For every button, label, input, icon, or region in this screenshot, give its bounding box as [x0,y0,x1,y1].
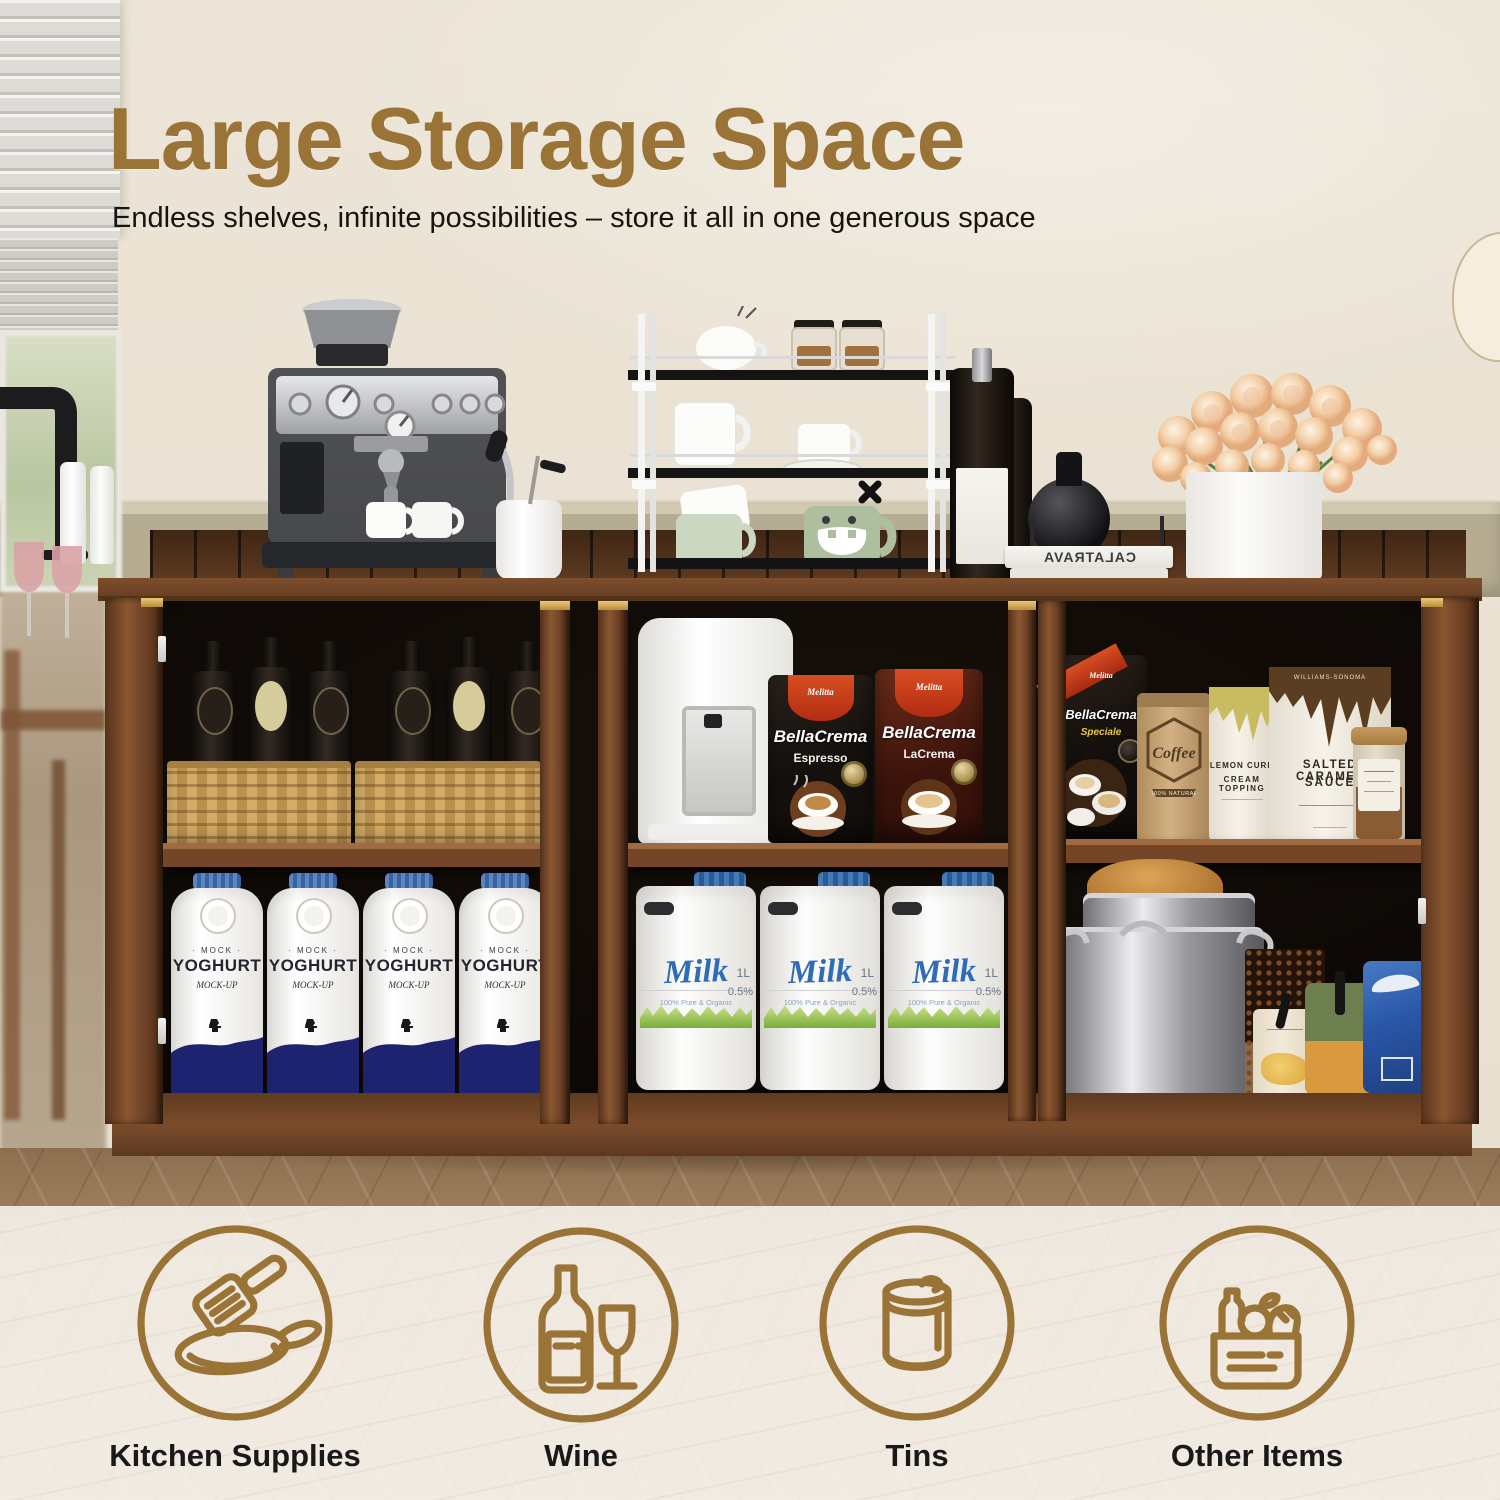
window-blinds-lower [0,238,118,330]
bottle-label [453,681,485,731]
milk-jug: Milk 100% Pure & Organic 1L 0.5% [760,872,880,1090]
bottle-neck [461,637,477,671]
melitta-red-banner [788,675,854,721]
bottle-label [255,681,287,731]
page-title: Large Storage Space [108,88,964,190]
dining-table-edge [0,710,106,730]
jar-lid [1351,727,1407,745]
bottle-label [197,687,233,735]
cabinet-shelf [163,843,543,867]
speciale-variant: Speciale [1055,727,1147,738]
frying-pan-icon [130,1218,340,1428]
cabinet-plinth [112,1124,1472,1156]
yoghurt-bottle: · MOCK · YOGHURT MOCK-UP [171,873,263,1095]
spice-jar [1353,731,1405,843]
cabinet-door-open-mid [1008,601,1036,1121]
yoghurt-brand: · MOCK · [171,946,263,955]
bellacrema-name: BellaCrema [1055,707,1147,722]
door-hinge [158,636,166,662]
bottle-neck [205,641,221,675]
milk-pitcher [496,500,562,580]
marketing-banner: Large Storage Space Endless shelves, inf… [0,0,1500,1500]
cabinet-shelf [628,843,1010,867]
cabinet-door-open-mid [1038,601,1066,1121]
coffee-cup-art [778,775,858,837]
brass-corner-trim [1008,601,1036,610]
melitta-brand: Melitta [768,687,873,697]
brass-corner-trim [598,601,628,610]
yoghurt-bottle: · MOCK · YOGHURT MOCK-UP [363,873,455,1095]
lemon-line2: CREAM TOPPING [1209,775,1275,793]
latte-photo-art [1059,751,1137,835]
category-label: Wine [401,1438,761,1474]
bottle-neck [321,641,337,675]
caramel-brand: WILLIAMS-SONOMA [1269,675,1391,681]
bottle-neck [263,637,279,671]
jar-label [1358,759,1400,811]
coffee-bag-lacrema: Melitta BellaCrema LaCrema [875,669,983,843]
category-label: Other Items [1077,1438,1437,1474]
cabinet-countertop [98,578,1482,596]
swoosh-art [1370,972,1420,995]
wicker-basket [355,761,541,852]
coffee-bag-espresso: Melitta BellaCrema Espresso [768,675,873,843]
category-label: Kitchen Supplies [55,1438,415,1474]
melitta-brand: Melitta [875,682,983,692]
pot-handles [1051,917,1275,977]
brass-corner-trim [141,598,163,607]
door-hinge [1418,898,1426,924]
lemon-line1: LEMON CURD [1209,761,1275,770]
cabinet-door-open-left [105,598,163,1124]
wine-bottle-label [956,468,1008,564]
stir-sticks [500,452,570,508]
yoghurt-wave [171,1017,263,1095]
dispenser-base [648,824,783,840]
grocery-bag-icon [1152,1218,1362,1428]
bag-clip [1335,971,1345,1015]
cabinet-door-open-right [1421,598,1479,1124]
cabinet-door-open-mid [598,601,628,1124]
monster-mug [804,484,892,566]
dispenser-spout [704,714,722,728]
cabinet-body: · MOCK · YOGHURT MOCK-UP · MOCK · YOGHUR… [105,601,1479,1124]
wicker-basket [167,761,351,852]
black-vase-neck [1056,452,1082,486]
melitta-red-banner [895,669,963,717]
bookmark-stick [1160,516,1164,548]
brass-corner-trim [1421,598,1443,607]
cabinet-shelf [1063,839,1425,863]
melitta-brand: Melitta [1055,671,1147,680]
wine-icon [476,1220,686,1430]
yoghurt-sub: MOCK-UP [171,980,263,990]
chips-bag-blue [1363,961,1427,1093]
kraft-fold [1137,693,1211,707]
grass-art [640,1002,752,1028]
bookmark-stick [1030,516,1034,548]
kraft-coffee-bag: Coffee 100% NATURAL [1137,693,1211,843]
bellacrema-name: BellaCrema [768,727,873,747]
cabinet-inner-floor [155,1093,1431,1124]
milk-jug: Milk 100% Pure & Organic 1L 0.5% [884,872,1004,1090]
book-spine-text: CALATRAVA [1043,546,1136,568]
brass-corner-trim [540,601,570,610]
category-label: Tins [737,1438,1097,1474]
door-hinge [158,1018,166,1044]
caramel-script-rule [1299,805,1361,806]
yoghurt-seal [200,898,236,934]
book-stack: CALATRAVA [1005,546,1173,568]
lemon-curd-bag: LEMON CURD CREAM TOPPING [1209,687,1275,843]
wine-glasses [8,540,92,662]
coffee-bag-speciale: Melitta BellaCrema Speciale [1055,655,1147,843]
cabinet-shadow [60,1152,1460,1182]
flower-vase [1186,472,1322,580]
bellacrema-name: BellaCrema [875,723,983,743]
yoghurt-bottle: · MOCK · YOGHURT MOCK-UP [459,873,551,1095]
bottle-neck [519,641,535,675]
countertop-rack [626,306,960,584]
bottle-label [395,687,431,735]
kraft-coffee-name: Coffee [1137,745,1211,763]
tin-can-icon [812,1218,1022,1428]
milk-fat: 0.5% [728,986,753,998]
lemon-rule [1221,799,1263,800]
page-subtitle: Endless shelves, infinite possibilities … [112,202,1036,235]
yoghurt-name: YOGHURT [171,956,263,976]
label-box [1381,1057,1413,1081]
milk-body: Milk 100% Pure & Organic 1L 0.5% [636,886,756,1090]
cabinet-door-open-mid [540,601,570,1124]
coffee-cup-art [887,773,971,837]
caramel-net-rule [1313,827,1347,828]
bottle-label [313,687,349,735]
stool-leg [52,760,65,1120]
wine-bottle-cap [972,348,992,382]
yoghurt-body: · MOCK · YOGHURT MOCK-UP [171,888,263,1095]
milk-jug: Milk 100% Pure & Organic 1L 0.5% [636,872,756,1090]
water-bottle [90,466,114,564]
chips-art [1261,1053,1309,1085]
window-blinds [0,0,120,238]
yoghurt-bottle: · MOCK · YOGHURT MOCK-UP [267,873,359,1095]
kraft-coffee-tagline: 100% NATURAL [1137,791,1211,797]
drip-art [1209,687,1275,757]
milk-size: 1L [737,966,750,980]
bottle-neck [403,641,419,675]
